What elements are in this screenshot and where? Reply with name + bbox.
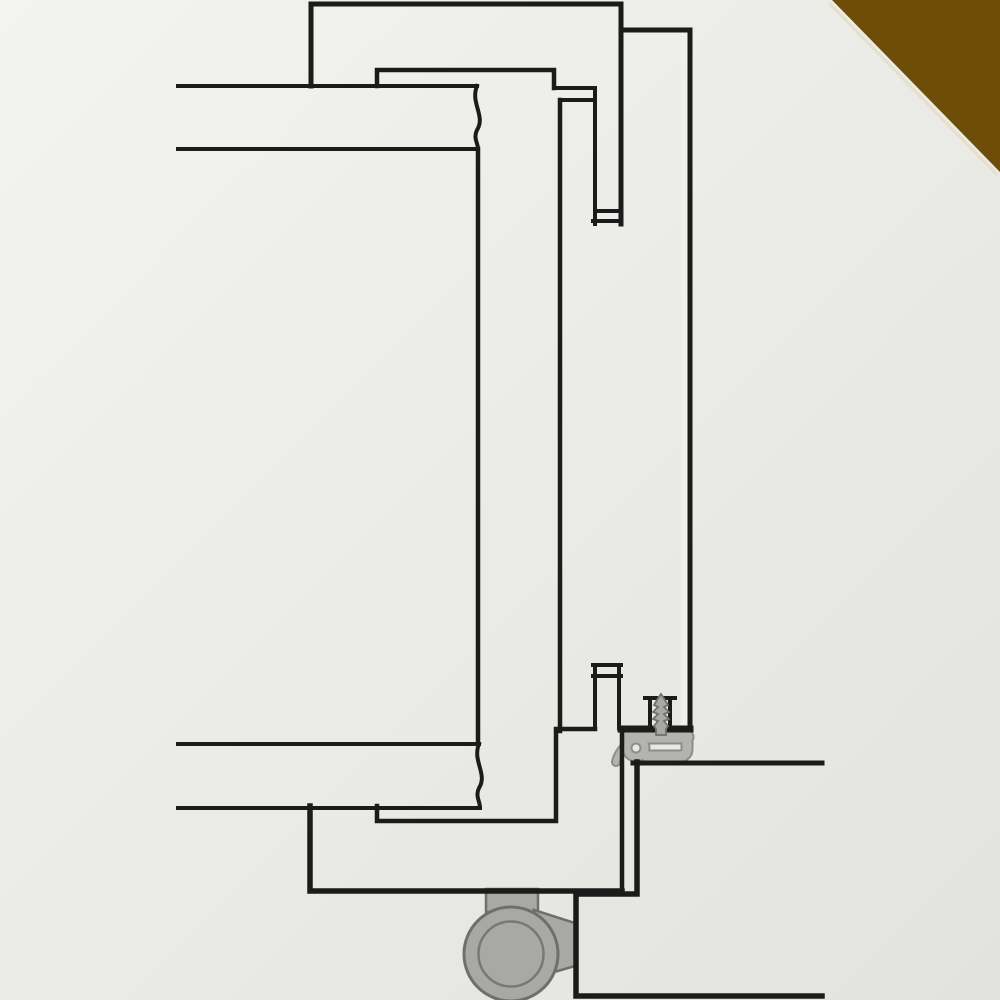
- wheel-inner: [479, 922, 544, 987]
- drawing-background: [0, 0, 1000, 1000]
- door-frame-section-drawing: [0, 0, 1000, 1000]
- profile-section-canvas: [0, 0, 1000, 1000]
- roller-wheel: [464, 907, 558, 1000]
